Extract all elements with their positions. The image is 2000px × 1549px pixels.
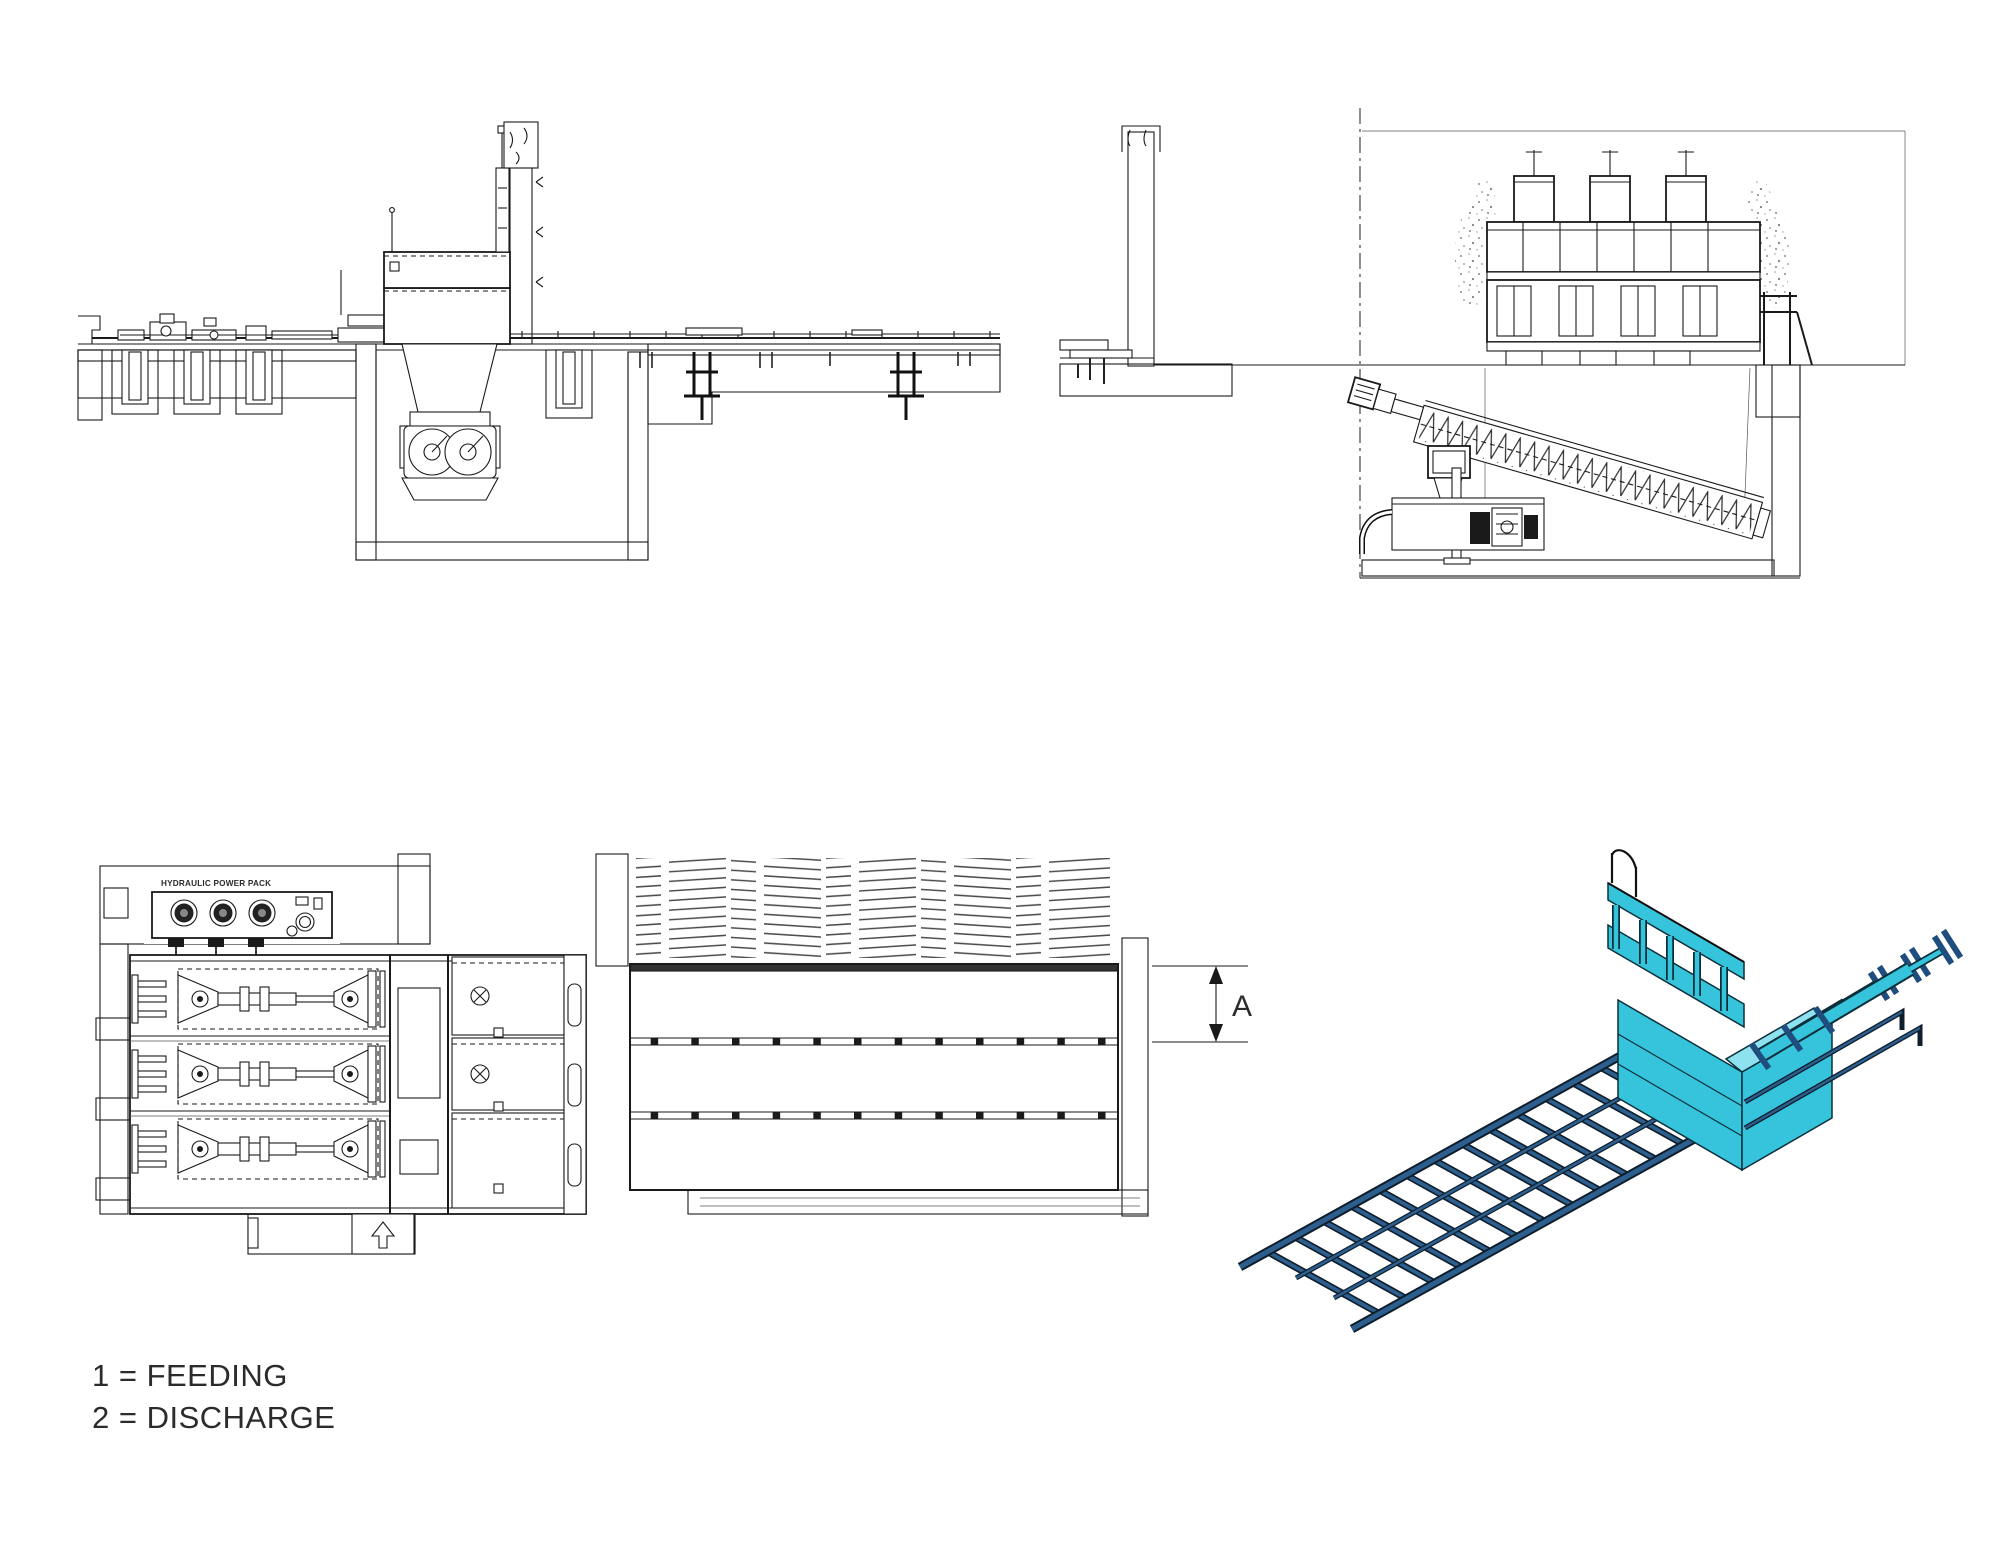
discharge-plan [248, 1214, 415, 1254]
feeder-machine-plan [130, 955, 586, 1214]
machine-mast [496, 168, 509, 252]
rear-wall [504, 122, 543, 344]
louver-cover [636, 858, 1110, 958]
feeding-module [1608, 850, 1959, 1170]
hydraulic-cylinder [218, 993, 296, 1005]
machine-end-view [1455, 150, 1812, 365]
press-machine [338, 126, 510, 344]
hydraulic-cylinders-iso [1753, 933, 1959, 1066]
machine-upper-body [384, 252, 510, 288]
support-pads [1506, 351, 1690, 365]
slot-column [564, 955, 586, 1214]
legend: 1 = FEEDING 2 = DISCHARGE [92, 1358, 335, 1435]
dimension-a: A [1152, 966, 1252, 1042]
cad-drawing: HYDRAULIC POWER PACK [0, 0, 2000, 1549]
grid-floor [628, 964, 1119, 1190]
floor-anchors [684, 352, 924, 420]
hydraulic-cylinder [218, 1068, 296, 1080]
view-side-elevation [78, 122, 1000, 560]
chimneys [1514, 150, 1706, 222]
foundation-pockets [112, 350, 592, 418]
power-pack-label: HYDRAULIC POWER PACK [161, 879, 271, 888]
legend-discharge: 2 = DISCHARGE [92, 1400, 335, 1435]
screw-conveyor [1342, 377, 1774, 564]
twin-screw-discharge [400, 344, 500, 500]
arrow-up-icon [1209, 966, 1223, 984]
view-end-elevation [1060, 108, 1905, 578]
foundation-left [78, 350, 356, 398]
hydraulic-cylinder [218, 1143, 296, 1155]
left-wall [1060, 126, 1232, 396]
pump-tank [1362, 498, 1544, 554]
transfer-panels [452, 957, 564, 1208]
arrow-down-icon [1209, 1024, 1223, 1042]
right-wall-band [1122, 938, 1148, 1216]
view-isometric [1240, 850, 1959, 1329]
left-curb [78, 316, 100, 344]
bottom-water-band [688, 1190, 1148, 1214]
dimension-a-label: A [1232, 990, 1252, 1023]
deck-bolts [640, 352, 970, 368]
left-wall-band [100, 944, 128, 1214]
machine-lower-body [384, 288, 510, 344]
legend-feeding: 1 = FEEDING [92, 1358, 288, 1393]
view-plan: HYDRAULIC POWER PACK [96, 854, 1252, 1254]
drawing-sheet: HYDRAULIC POWER PACK [0, 0, 2000, 1549]
